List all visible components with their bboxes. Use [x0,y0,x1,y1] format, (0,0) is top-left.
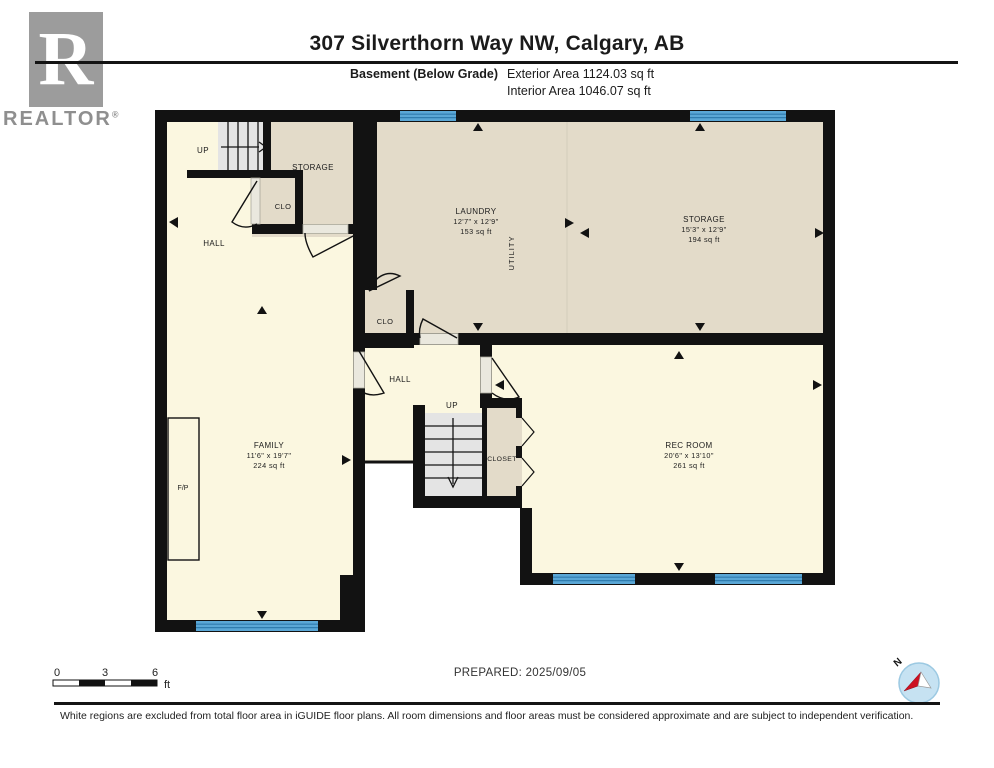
rec-room-area: 261 sq ft [673,461,705,470]
scale-bar: 0 3 6 ft [50,664,210,694]
fireplace: F/P [168,418,199,560]
closet-label: CLOSET [487,456,517,463]
footer-rule [54,702,940,705]
scale-unit: ft [164,679,170,691]
exterior-area: Exterior Area 1124.03 sq ft [507,67,654,81]
floor-label: Basement (Below Grade) [280,67,498,81]
rec-room-dimensions: 20'6" x 13'10" [664,451,714,460]
hall-top-label: HALL [203,239,225,248]
prepared-date: PREPARED: 2025/09/05 [400,667,640,679]
clo-mid-label: CLO [377,317,394,326]
scale-tick-6: 6 [152,667,158,679]
family-dimensions: 11'6" x 19'7" [247,451,292,460]
storage-label: STORAGE [683,215,725,224]
storage-top-label: STORAGE [292,163,334,172]
hall-mid-label: HALL [389,375,411,384]
family-label: FAMILY [254,441,285,450]
realtor-logo: R [29,12,103,107]
disclaimer-text: White regions are excluded from total fl… [60,710,970,722]
laundry-dimensions: 12'7" x 12'9" [453,217,498,226]
registered-mark: ® [112,109,119,119]
realtor-wordmark: REALTOR® [3,108,118,131]
fireplace-label: F/P [178,485,189,492]
storage-dimensions: 15'3" x 12'9" [681,225,726,234]
storage-area: 194 sq ft [688,235,720,244]
up-top-label: UP [197,146,209,155]
interior-area: Interior Area 1046.07 sq ft [507,84,651,98]
laundry-area: 153 sq ft [460,227,492,236]
scale-tick-3: 3 [102,667,108,679]
rec-room-floor [480,345,835,585]
family-area: 224 sq ft [253,461,285,470]
compass-north-label: N [892,656,905,669]
laundry-label: LAUNDRY [456,207,497,216]
up-mid-label: UP [446,401,458,410]
floor-plan: F/P UP STORAGE CLO HALL LAUNDRY 12'7" x … [155,110,835,640]
rec-room-label: REC ROOM [665,441,712,450]
laundry-storage-floor [365,110,835,345]
realtor-wordmark-text: REALTOR [3,108,112,130]
scale-tick-0: 0 [54,667,60,679]
header-rule [35,61,958,64]
clo-top-label: CLO [275,202,292,211]
page-title: 307 Silverthorn Way NW, Calgary, AB [0,32,994,56]
stairs-up-top [218,122,268,172]
stairs-up-mid [425,413,482,496]
utility-label: UTILITY [507,236,516,271]
